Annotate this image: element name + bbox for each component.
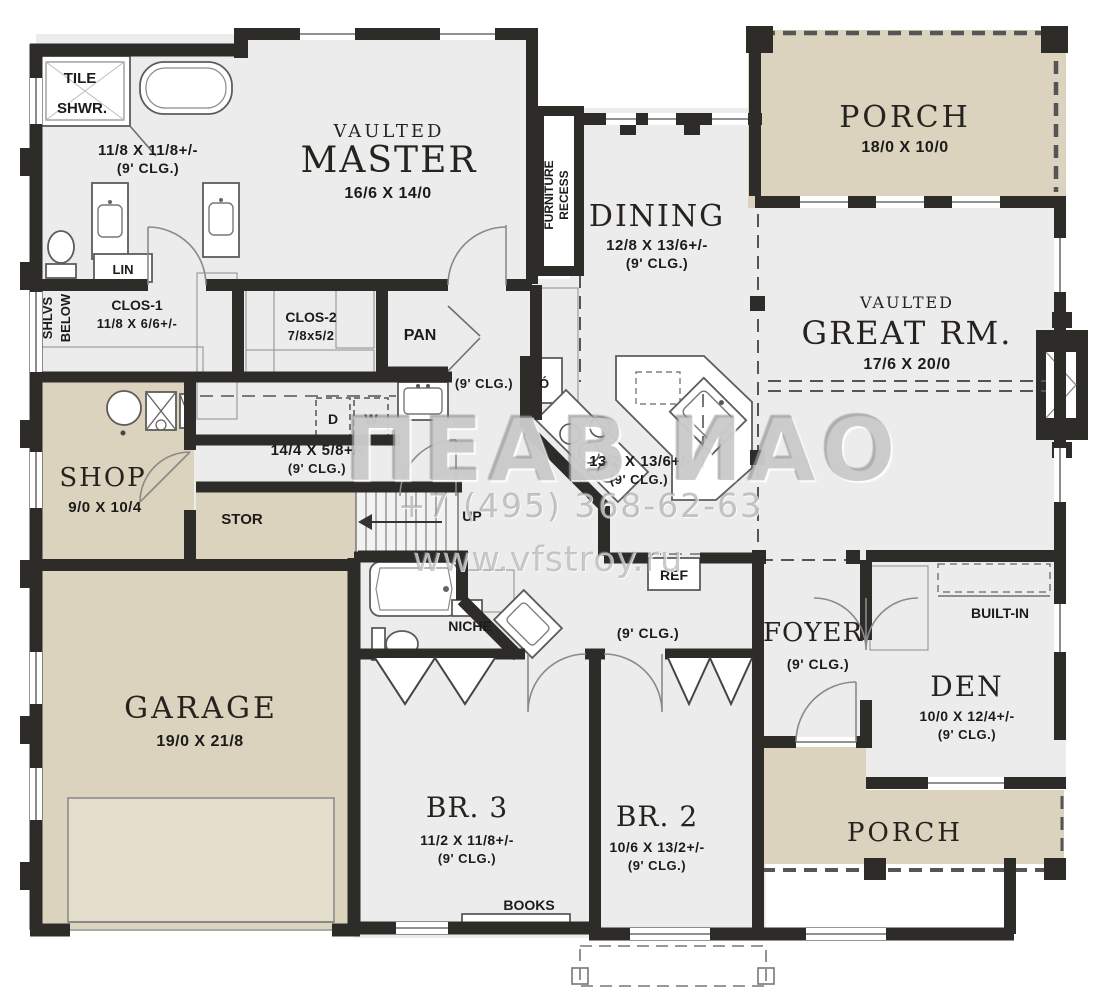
label-dryer: D: [328, 411, 338, 427]
label-shwr: SHWR.: [57, 100, 107, 117]
label-stor: STOR: [221, 511, 263, 528]
br2-bay-dashed: [580, 946, 766, 986]
foyer-column: [752, 550, 766, 564]
label-great-name: GREAT RM.: [802, 314, 1013, 352]
label-mbath-dims: 11/8 X 11/8+/-: [98, 142, 198, 159]
label-br3-dims: 11/2 X 11/8+/-: [420, 832, 514, 848]
label-up: UP: [462, 508, 481, 524]
label-books: BOOKS: [503, 897, 554, 913]
label-porch-bottom-name: PORCH: [847, 818, 963, 848]
vanity-sink-icon: [92, 183, 128, 259]
label-den-dims: 10/0 X 12/4+/-: [919, 708, 1014, 724]
label-clos1-dims: 11/8 X 6/6+/-: [97, 316, 178, 331]
label-shop-name: SHOP: [59, 463, 146, 493]
label-den-name: DEN: [930, 670, 1003, 703]
garage-door: [68, 798, 334, 930]
label-recess: RECESS: [557, 170, 571, 219]
floor-plan: TILE SHWR. 11/8 X 11/8+/- (9' CLG.) VAUL…: [0, 0, 1095, 1000]
label-foyer-clg: (9' CLG.): [787, 656, 849, 672]
label-great-prefix: VAULTED: [859, 293, 954, 312]
floor-plan-drawing: TILE SHWR. 11/8 X 11/8+/- (9' CLG.) VAUL…: [0, 0, 1095, 1000]
porch-bottom-post: [1044, 858, 1066, 880]
bathtub-icon: [140, 62, 232, 114]
label-great-dims: 17/6 X 20/0: [863, 356, 950, 373]
bathtub2-icon: [370, 562, 458, 616]
porch-post: [746, 26, 773, 53]
porch-bottom-post: [864, 858, 886, 880]
label-oven: Ó: [539, 376, 549, 391]
clos2-hatch-right: [336, 290, 374, 348]
label-master-dims: 16/6 X 14/0: [344, 185, 431, 202]
label-below: BELOW: [58, 293, 73, 342]
label-mbath-clg: (9' CLG.): [117, 160, 179, 176]
label-master-prefix: VAULTED: [332, 121, 444, 142]
label-porch-top-dims: 18/0 X 10/0: [861, 139, 948, 156]
label-hall-upper-clg: (9' CLG.): [455, 376, 513, 391]
stairs: [356, 489, 458, 555]
label-built-in: BUILT-IN: [971, 605, 1029, 621]
label-niche: NICHE: [448, 618, 492, 634]
label-clos2-name: CLOS-2: [285, 309, 337, 325]
clos1-hatch: [38, 347, 203, 374]
label-kitchen-clg: (9' CLG.): [610, 472, 668, 487]
label-lin: LIN: [113, 262, 134, 277]
label-shlvs: SHLVS: [40, 296, 55, 339]
label-ref: REF: [660, 567, 688, 583]
label-master-name: MASTER: [301, 140, 478, 181]
stor-floor: [196, 487, 358, 565]
label-clos1-name: CLOS-1: [111, 297, 163, 313]
label-laundry-dims: 14/4 X 5/8+/-: [271, 442, 364, 459]
label-shop-dims: 9/0 X 10/4: [68, 499, 142, 516]
label-tile: TILE: [64, 70, 97, 87]
label-pan: PAN: [404, 327, 437, 344]
label-hall-lower-clg: (9' CLG.): [617, 625, 679, 641]
label-garage-name: GARAGE: [124, 691, 278, 726]
label-br2-dims: 10/6 X 13/2+/-: [609, 839, 704, 855]
label-dining-dims: 12/8 X 13/6+/-: [606, 237, 708, 254]
label-foyer-name: FOYER: [763, 618, 863, 648]
label-kitchen-dims: 13/2 X 13/6+/-: [589, 453, 691, 470]
label-br3-clg: (9' CLG.): [438, 851, 496, 866]
label-br2-clg: (9' CLG.): [628, 858, 686, 873]
den-closet-hatch: [870, 566, 928, 650]
label-br2-name: BR. 2: [616, 800, 698, 833]
foyer-column: [846, 550, 860, 564]
porch-post: [1041, 26, 1068, 53]
label-furniture: FURNITURE: [542, 160, 556, 229]
label-dining-clg: (9' CLG.): [626, 255, 688, 271]
label-br3-name: BR. 3: [426, 791, 508, 824]
label-porch-top-name: PORCH: [839, 100, 970, 135]
label-den-clg: (9' CLG.): [938, 727, 996, 742]
toilet-icon: [46, 231, 76, 278]
label-laundry-clg: (9' CLG.): [288, 461, 346, 476]
label-dining-name: DINING: [589, 199, 725, 234]
clos-divider-hatch: [197, 273, 237, 419]
vanity-sink-icon-2: [203, 183, 239, 257]
label-garage-dims: 19/0 X 21/8: [156, 733, 243, 750]
label-clos2-dims: 7/8x5/2: [288, 328, 335, 343]
label-washer: W: [364, 411, 378, 427]
